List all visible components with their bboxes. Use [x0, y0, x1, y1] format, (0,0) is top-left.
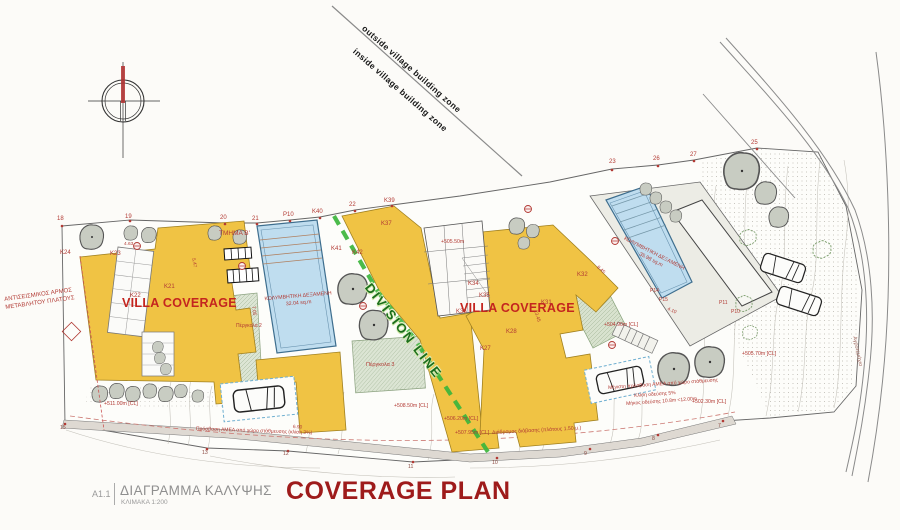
- plan-annotation: +508.50m [CL]: [394, 404, 428, 409]
- plan-annotation: K36: [456, 309, 467, 315]
- plan-annotation: 22: [349, 202, 356, 208]
- plan-annotation: K32: [577, 272, 588, 278]
- plan-annotation: K24: [60, 250, 71, 256]
- plan-annotation: 19: [125, 214, 132, 220]
- plan-annotation: K23: [110, 251, 121, 257]
- plan-annotation: K27: [480, 346, 491, 352]
- window-grid-1: [224, 247, 252, 260]
- window-grid-2: [227, 268, 259, 283]
- plan-annotation: K35: [479, 293, 490, 299]
- plan-annotation: K22: [130, 293, 141, 299]
- plan-annotation: K28: [506, 329, 517, 335]
- plan-annotation: Πέργκολα 3: [366, 363, 394, 369]
- plan-annotation: 4.63: [124, 243, 133, 248]
- plan-annotation: K31: [541, 300, 552, 306]
- drawing-scale: ΚΛΙΜΑΚΑ 1:200: [121, 499, 168, 506]
- plan-annotation: 20: [220, 215, 227, 221]
- plan-annotation: P15: [659, 298, 668, 303]
- plan-annotation: 11: [408, 465, 413, 470]
- plan-annotation: ΤΜΗΜΑ Β': [219, 231, 250, 238]
- plan-annotation: Πέργκολα 2: [236, 324, 262, 329]
- plan-annotation: +505.50m: [441, 240, 464, 245]
- plan-annotation: 25: [751, 140, 758, 146]
- drawing-title-english: COVERAGE PLAN: [286, 477, 511, 506]
- plan-annotation: K42: [352, 250, 363, 256]
- plan-annotation: P14: [650, 289, 659, 294]
- plan-annotation: P10: [731, 310, 740, 315]
- plan-annotation: +506.20m [CL]: [444, 417, 478, 422]
- plan-annotation: +507.95m [CL]: [455, 431, 489, 436]
- plan-annotation: 15: [60, 426, 66, 431]
- plan-annotation: 23: [609, 159, 616, 165]
- plan-annotation: 26: [653, 156, 660, 162]
- plan-annotation: P11: [719, 301, 728, 306]
- north-compass-icon: [88, 62, 160, 158]
- plan-annotation: K39: [384, 198, 395, 204]
- plan-annotation: 7.05: [249, 306, 255, 316]
- plan-annotation: 12: [283, 452, 289, 457]
- plan-annotation: K37: [381, 221, 392, 227]
- title-divider: [114, 483, 115, 505]
- plan-annotation: P10: [283, 212, 294, 218]
- drawing-title-greek: ΔΙΑΓΡΑΜΜΑ ΚΑΛΥΨΗΣ: [120, 483, 272, 499]
- plan-annotation: 5.47: [189, 258, 196, 268]
- plan-annotation: 9: [584, 452, 587, 457]
- plan-annotation: 13: [202, 451, 208, 456]
- sheet-number: A1.1: [92, 489, 111, 499]
- site-plan-drawing: [0, 0, 900, 530]
- plan-annotation: +504.90m [CL]: [604, 323, 638, 328]
- plan-annotation: 8: [652, 437, 655, 442]
- plan-annotation: 27: [690, 152, 697, 158]
- plan-annotation: 6.90: [293, 426, 303, 431]
- plan-annotation: +511.00m [CL]: [104, 402, 138, 407]
- villa-coverage-label-right: VILLA COVERAGE: [460, 301, 572, 315]
- plan-annotation: 10: [492, 461, 498, 466]
- car: [233, 385, 286, 412]
- plan-annotation: 7: [718, 424, 721, 429]
- coverage-plan-sheet: outside village building zone inside vil…: [0, 0, 900, 530]
- plan-annotation: 21: [252, 216, 259, 222]
- plan-annotation: K21: [164, 284, 175, 290]
- plan-annotation: 18: [57, 216, 64, 222]
- plan-annotation: +505.70m [CL]: [742, 352, 776, 357]
- plan-annotation: K34: [468, 281, 479, 287]
- plan-annotation: K41: [331, 246, 342, 252]
- plan-annotation: K40: [312, 209, 323, 215]
